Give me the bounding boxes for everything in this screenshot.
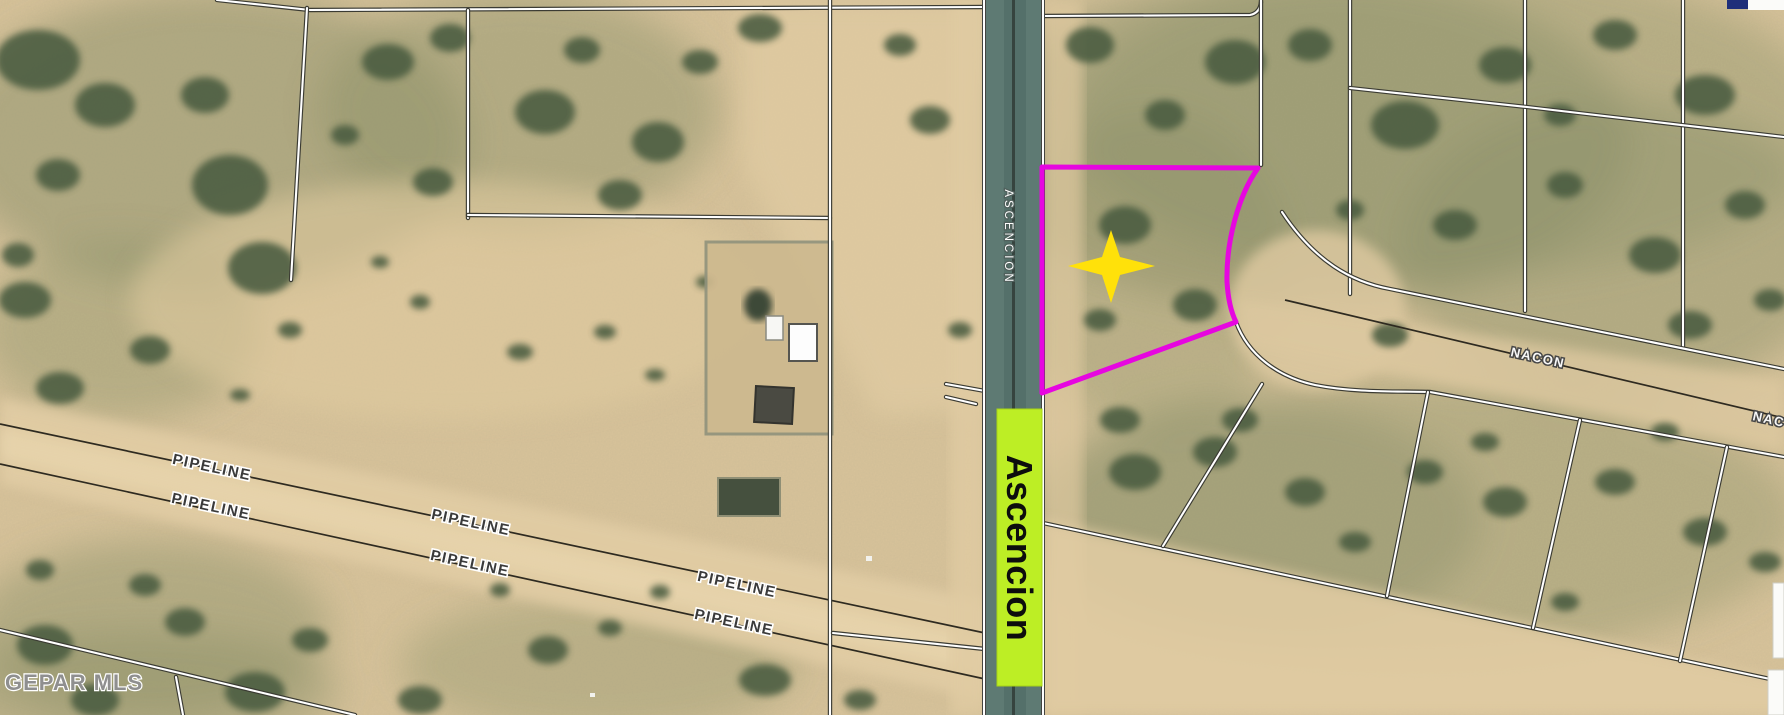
map-image: Ascencion ASCENCION NACON NACON PIPELINE… — [0, 0, 1784, 715]
ascencion-sign-label: Ascencion — [999, 455, 1040, 642]
gepar-mls-watermark: GEPAR MLS — [5, 670, 143, 695]
aerial-map-view: Ascencion ASCENCION NACON NACON PIPELINE… — [0, 0, 1784, 715]
dark-structure-2 — [718, 478, 780, 516]
ascencion-street-sign: Ascencion — [997, 409, 1042, 686]
large-building — [789, 324, 817, 361]
small-building — [766, 316, 783, 340]
map-pin-fragment — [1727, 0, 1748, 9]
ascencion-street-label: ASCENCION — [1002, 189, 1014, 284]
dark-structure — [754, 386, 794, 424]
